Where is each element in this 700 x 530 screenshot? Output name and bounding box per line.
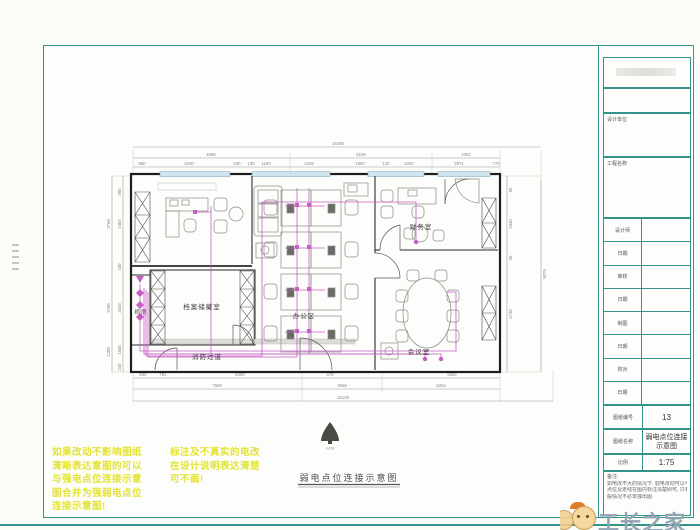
notes-line: 点位及走线在图内标注清楚即可, 只有大改动需另出图的一 [607,487,687,494]
titleblock-sheet-name: 图纸名称 弱电点位连接 示意图 [603,429,691,454]
signature-row-label: 校对 [604,359,642,382]
dimension-labels-top: 16290 4688 5199 2361 980 3190 930 130 11… [138,141,500,166]
signature-row-value [642,219,690,242]
room-label-corridor: 消防过道 [192,352,222,361]
svg-text:1500: 1500 [117,345,122,355]
svg-text:9075: 9075 [542,269,547,279]
svg-text:90: 90 [508,255,513,260]
svg-text:2483: 2483 [117,219,122,229]
sheet-name-label: 图纸名称 [604,430,643,453]
north-arrow-icon: APII [321,422,339,451]
review-note-line: 如果改动不影响图纸 [52,446,142,460]
review-note-line: 在设计说明表达清楚 [170,460,260,474]
svg-text:2226: 2226 [304,161,314,166]
svg-text:4688: 4688 [206,152,216,157]
titleblock-design-unit-cell: 设计单位 [603,113,691,157]
scale-label: 比例 [604,455,643,470]
signature-row-value [642,289,690,312]
sheet-name-value-line2: 示意图 [656,442,677,451]
watermark: 工长之家 [560,500,700,530]
svg-text:2971: 2971 [454,161,464,166]
signature-row-label: 日期 [604,382,642,404]
svg-text:130: 130 [247,161,255,166]
svg-text:5199: 5199 [356,152,366,157]
svg-text:16290: 16290 [332,141,345,146]
svg-text:3568: 3568 [337,383,347,388]
room-label-archive: 档案储藏室 [183,302,221,311]
svg-text:2361: 2361 [461,152,471,157]
titleblock-logo-cell [603,57,691,88]
dimension-labels-bottom: 940 781 8298 478 5584 7569 3568 5254 161… [139,372,457,400]
review-note-line: 清晰表达意图的可以 [52,460,142,474]
signature-row-value [642,266,690,289]
review-note-line: 可不画! [170,473,260,487]
signature-row-label: 审核 [604,266,642,289]
svg-text:980: 980 [138,161,146,166]
signature-row-label: 制图 [604,312,642,335]
signature-row-label: 设计师 [604,219,642,242]
company-logo [616,68,676,76]
signature-row-value [642,382,690,404]
svg-text:3428: 3428 [117,303,122,313]
signature-row-value [642,359,690,382]
room-label-office: 办公区 [293,311,316,320]
signature-row-label: 日期 [604,242,642,265]
signature-row-value [642,312,690,335]
svg-text:130: 130 [382,161,390,166]
review-note-line: 与强电点位连接示意 [52,473,142,487]
room-label-server: 机房 [134,308,147,316]
titleblock-signature-rows: 设计师 日期 审核 日期 制图 日期 校对 日期 [603,218,691,405]
titleblock-scale: 比例 1:75 [603,454,691,471]
scale-value: 1:75 [643,455,690,470]
watermark-text: 工长之家 [598,507,686,530]
svg-text:2280: 2280 [404,161,414,166]
review-note-line: 连接示意图! [52,500,142,514]
signature-row-value [642,335,690,358]
svg-text:4730: 4730 [508,309,513,319]
dimension-extensions [112,150,553,402]
titleblock-project-cell: 工程名称 [603,157,691,218]
room-label-finance: 财务室 [410,222,433,231]
mascot-face-icon [572,506,596,530]
sheet-no-label: 图纸编号 [604,406,643,428]
svg-text:3340: 3340 [508,219,513,229]
design-unit-label: 设计单位 [604,114,690,123]
title-block: 设计单位 工程名称 设计师 日期 审核 日期 制图 日期 校对 日期 图纸编号 … [598,45,695,518]
svg-text:7569: 7569 [212,383,222,388]
project-name-label: 工程名称 [604,158,690,167]
svg-text:240: 240 [117,363,122,371]
scanned-page: 16290 4688 5199 2361 980 3190 930 130 11… [0,0,700,530]
signature-row-label: 日期 [604,335,642,358]
svg-text:1200: 1200 [106,347,111,357]
svg-text:16136: 16136 [337,395,350,400]
svg-text:3190: 3190 [184,161,194,166]
svg-text:1180: 1180 [261,161,271,166]
review-note-line: 图合并为强弱电点位 [52,487,142,501]
titleblock-spacer-cell [603,88,691,113]
signature-row-label: 日期 [604,289,642,312]
svg-text:3766: 3766 [106,219,111,229]
titleblock-sheet-no: 图纸编号 13 [603,405,691,429]
svg-text:930: 930 [233,161,241,166]
svg-text:90: 90 [508,187,513,192]
sheet-no-value: 13 [643,406,690,428]
svg-text:1960: 1960 [355,161,365,166]
review-note-right: 标注及不真实的电改 在设计说明表达清楚 可不画! [170,446,260,487]
svg-text:弱电点位连接示意图: 弱电点位连接示意图 [299,472,398,483]
svg-text:APII: APII [326,446,335,451]
room-label-meeting: 会议室 [408,347,431,356]
signature-row-value [642,242,690,265]
sheet-name-value-line1: 弱电点位连接 [646,433,688,442]
svg-text:180: 180 [117,263,122,271]
svg-text:3785: 3785 [106,303,111,313]
svg-text:5254: 5254 [436,383,446,388]
svg-text:960: 960 [117,188,122,196]
svg-text:770: 770 [492,161,500,166]
window-strips [160,172,490,177]
review-note-line: 标注及不真实的电改 [170,446,260,460]
drawing-caption: 弱电点位连接示意图 [298,472,400,487]
review-note-left: 如果改动不影响图纸 清晰表达意图的可以 与强电点位连接示意 图合并为强弱电点位 … [52,446,142,514]
